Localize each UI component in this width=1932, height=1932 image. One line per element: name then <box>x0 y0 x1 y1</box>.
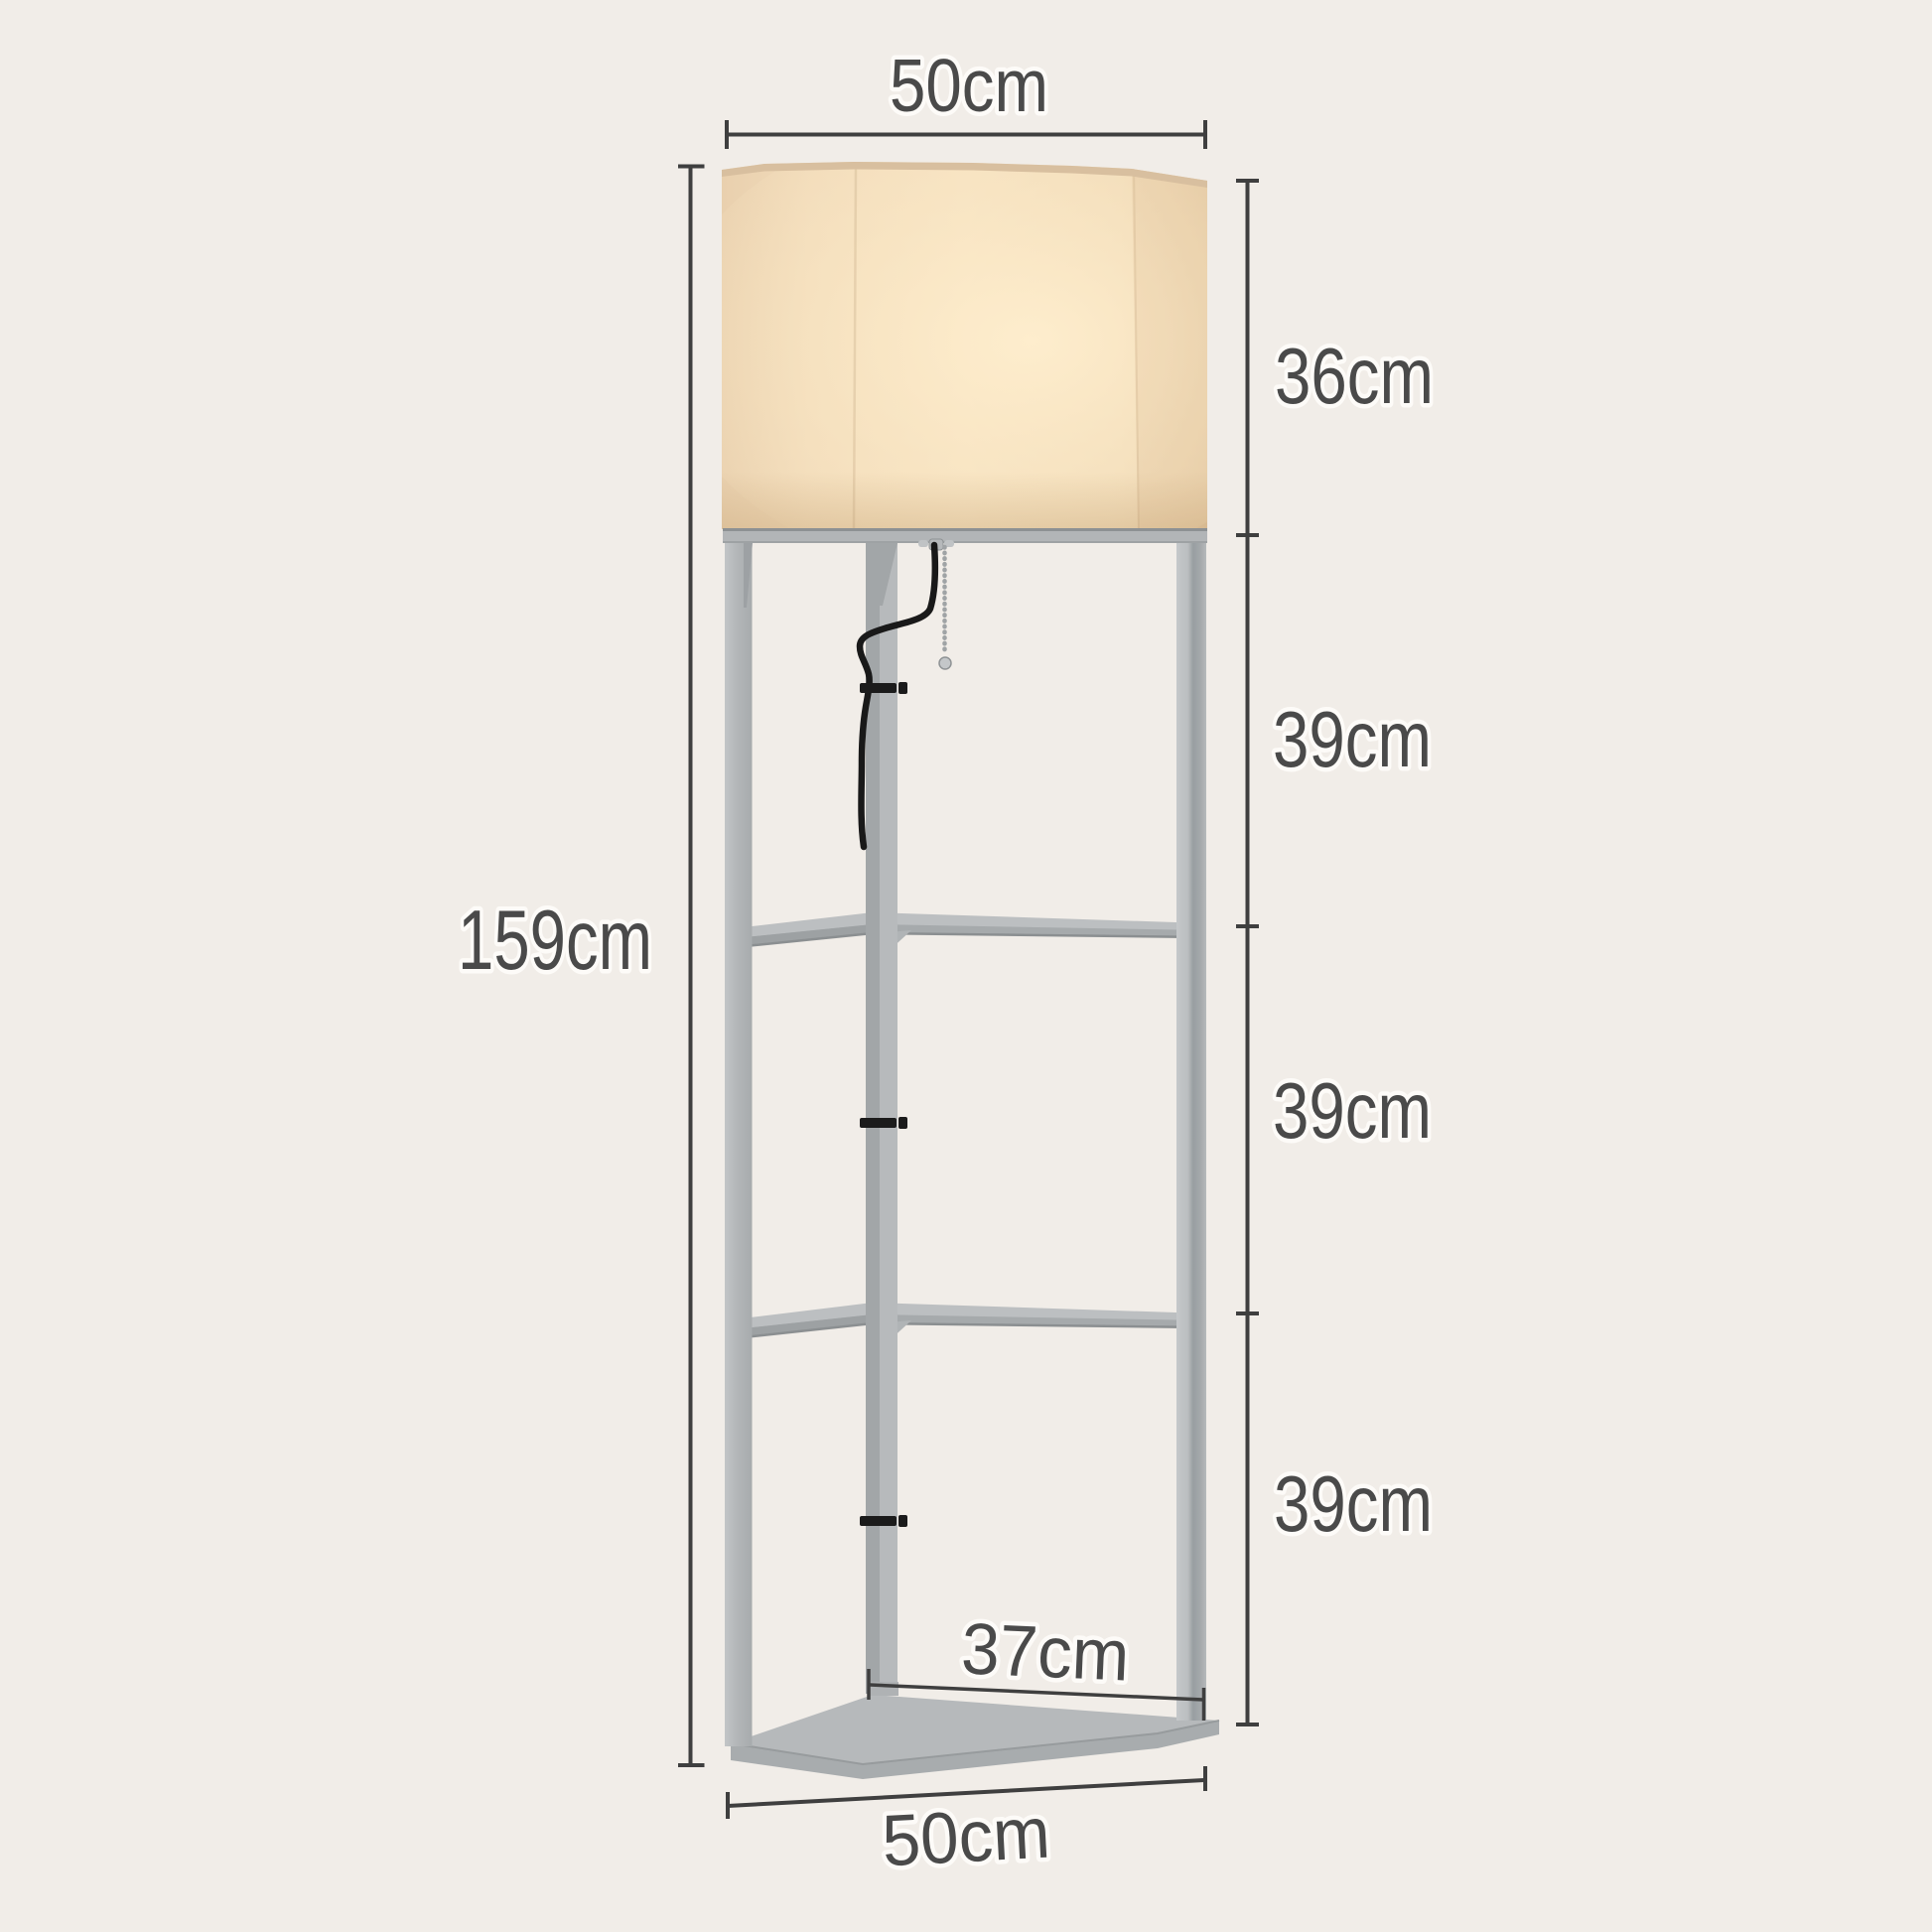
svg-text:39cm: 39cm <box>1273 1066 1432 1155</box>
svg-text:159cm: 159cm <box>458 894 652 988</box>
svg-text:37cm: 37cm <box>960 1608 1131 1696</box>
svg-text:39cm: 39cm <box>1274 1459 1433 1548</box>
svg-text:39cm: 39cm <box>1273 695 1432 783</box>
svg-text:50cm: 50cm <box>890 44 1048 127</box>
svg-text:36cm: 36cm <box>1275 332 1434 420</box>
svg-text:50cm: 50cm <box>881 1793 1052 1882</box>
